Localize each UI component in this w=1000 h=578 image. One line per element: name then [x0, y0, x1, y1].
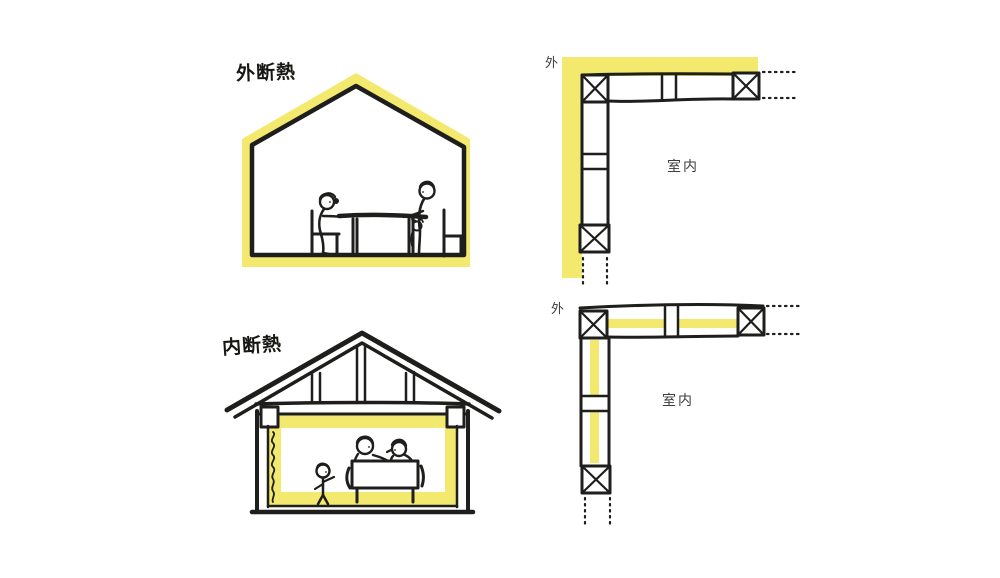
stud [665, 306, 678, 337]
corner-post-x [580, 311, 607, 338]
bottom-post-x [582, 466, 610, 493]
right-post-x [738, 308, 764, 335]
wall-continuation-dots [585, 306, 799, 526]
adult-on-bench-right [387, 440, 412, 461]
wall-continuation-dots [583, 72, 798, 288]
left-corner-post [261, 407, 278, 427]
corner-post-x [582, 75, 608, 102]
exterior-insulation-wall-detail [535, 48, 805, 293]
cavity-insulation-band [590, 319, 737, 463]
stud [662, 75, 676, 100]
adult-on-bench-left [355, 437, 388, 461]
bottom-post-x [580, 225, 609, 252]
ceiling-beam [256, 403, 469, 415]
interior-insulation-wall-detail [535, 295, 805, 535]
exterior-insulation-house-figure [220, 50, 520, 290]
hair-bun [333, 198, 339, 204]
floor [252, 506, 473, 512]
blocking [581, 396, 609, 411]
illustration-canvas: 外断熱 [0, 0, 1000, 578]
interior-insulation-house-figure [210, 325, 510, 560]
right-corner-post [447, 407, 464, 427]
right-post-x [733, 73, 759, 99]
blocking [582, 154, 608, 169]
